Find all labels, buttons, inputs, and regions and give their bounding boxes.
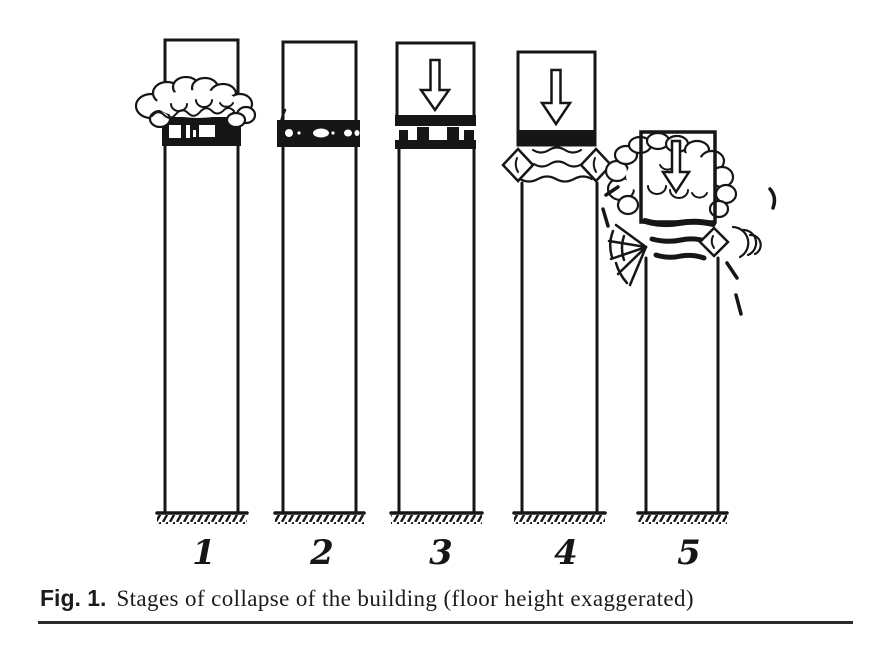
stage-1-explosion: 1: [136, 40, 255, 573]
ground-hatching: [275, 513, 364, 524]
ground-hatching: [391, 513, 482, 524]
block-bottom-slab: [518, 130, 595, 145]
lower-tower-outline: [399, 145, 474, 513]
caption-label: Fig. 1.: [40, 585, 106, 611]
caption-rule: [38, 621, 853, 624]
buckled-wall-diamonds: [503, 149, 611, 181]
stage-label: 3: [429, 533, 453, 573]
stage-label: 2: [309, 533, 334, 573]
stage-3-upper-block-drop: 3: [391, 43, 482, 573]
stage-label: 1: [192, 533, 216, 573]
lower-tower-outline: [646, 258, 718, 513]
caption-text: Stages of collapse of the building (floo…: [116, 586, 694, 611]
ground-hatching: [157, 513, 247, 524]
stage-label: 4: [554, 533, 578, 573]
lower-tower-outline: [522, 183, 597, 513]
block-bottom-slab: [395, 115, 476, 126]
buckled-wall-diamond: [700, 228, 728, 256]
stage-4-impact-crushing: 4: [503, 52, 611, 573]
failing-columns: [399, 127, 474, 140]
stage-label: 5: [677, 533, 701, 573]
stage-5-progressive-collapse: 5: [603, 132, 774, 573]
stage-2-floor-crushed: 2: [275, 42, 364, 573]
wall-fan-debris: [609, 225, 646, 285]
tower-outline: [283, 42, 356, 513]
figure-caption: Fig. 1.Stages of collapse of the buildin…: [40, 585, 860, 612]
shockwave-arcs: [733, 227, 761, 257]
figure-collapse-stages: 1 2: [0, 0, 880, 656]
ground-hatching: [638, 513, 727, 524]
collapse-stages-diagram: 1 2: [0, 0, 880, 576]
impacted-floor-slab: [395, 140, 476, 149]
ground-hatching: [514, 513, 605, 524]
